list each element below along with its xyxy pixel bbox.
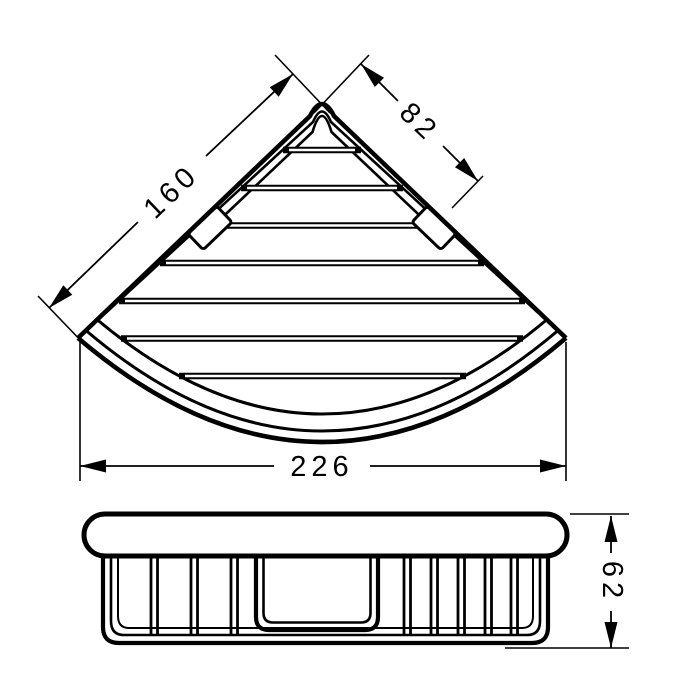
arrow-226-right: [540, 460, 566, 473]
ext-82-clip: [452, 176, 483, 208]
drawing-canvas: 160 82 226 62: [0, 0, 700, 700]
top-view: [78, 104, 566, 442]
top-view-inner-rim-arc: [86, 331, 558, 432]
top-view-outer-rim-arc: [78, 338, 566, 442]
dimension-160-label: 160: [138, 158, 206, 225]
top-view-arch-wire: [209, 116, 435, 230]
ext-82-apex: [314, 55, 369, 113]
ext-160-corner: [38, 296, 85, 345]
arrow-62-top: [605, 516, 618, 542]
side-view-center-opening-inner: [264, 556, 371, 623]
side-view: [84, 514, 567, 643]
side-view-rim: [84, 514, 567, 556]
arrow-62-bottom: [605, 622, 618, 648]
dimension-82-label: 82: [393, 97, 446, 149]
corner-basket-technical-drawing: 160 82 226 62: [0, 0, 700, 700]
arrow-226-left: [80, 460, 106, 473]
dimension-226-label: 226: [290, 451, 353, 483]
dimension-62-label: 62: [596, 561, 628, 603]
